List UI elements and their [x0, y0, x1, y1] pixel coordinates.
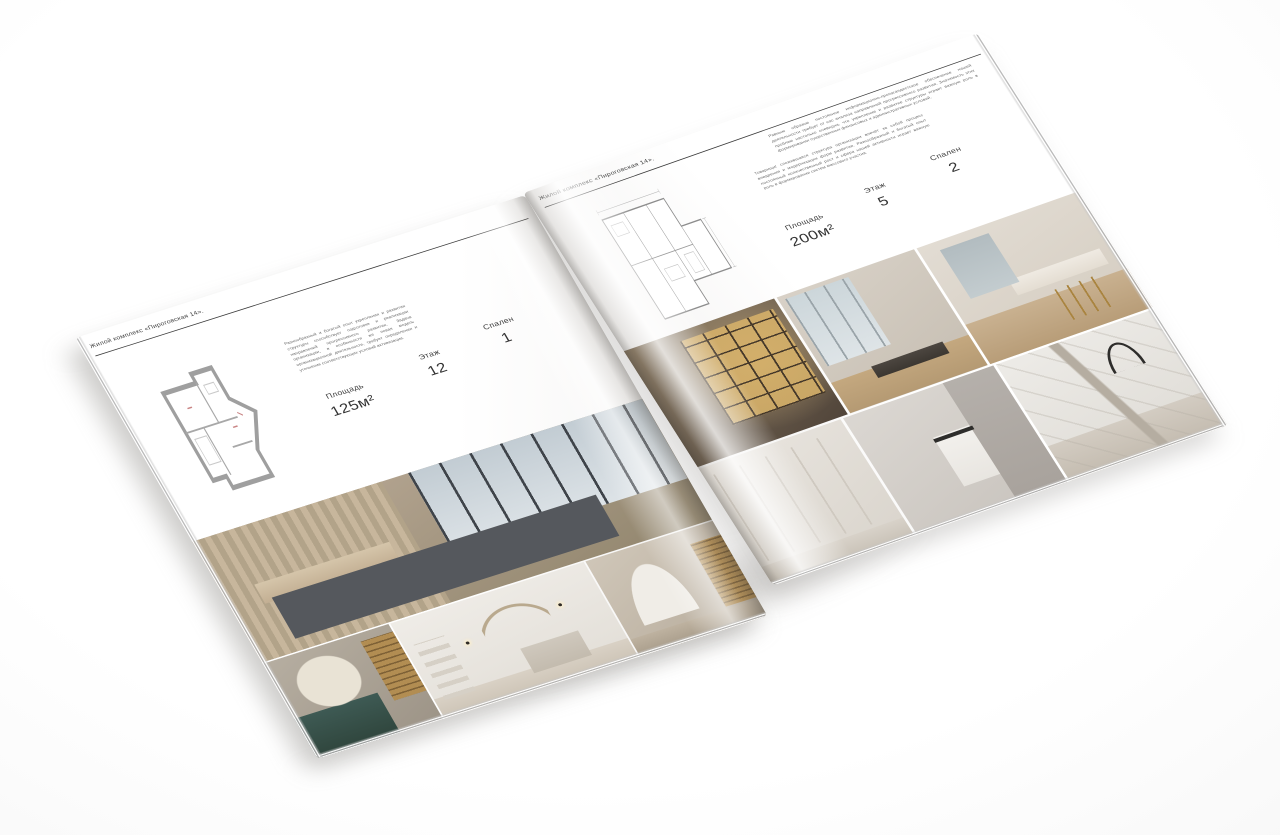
brochure-mockup-scene: Жилой комплекс «Пироговская 14». Разнооб… [0, 0, 1280, 835]
spec-area: Площадь 125м² [311, 378, 390, 424]
spec-bedrooms: Спален 2 [911, 139, 991, 185]
spec-bedrooms: Спален 1 [464, 310, 543, 356]
spec-floor: Этаж 12 [395, 341, 474, 387]
spec-floor: Этаж 5 [840, 173, 920, 219]
faucet-icon [1098, 337, 1146, 373]
floor-plan-200 [587, 175, 760, 334]
floor-plan-125 [139, 350, 302, 506]
page-title: Жилой комплекс «Пироговская 14». [88, 307, 205, 349]
spec-area: Площадь 200м² [770, 207, 850, 253]
